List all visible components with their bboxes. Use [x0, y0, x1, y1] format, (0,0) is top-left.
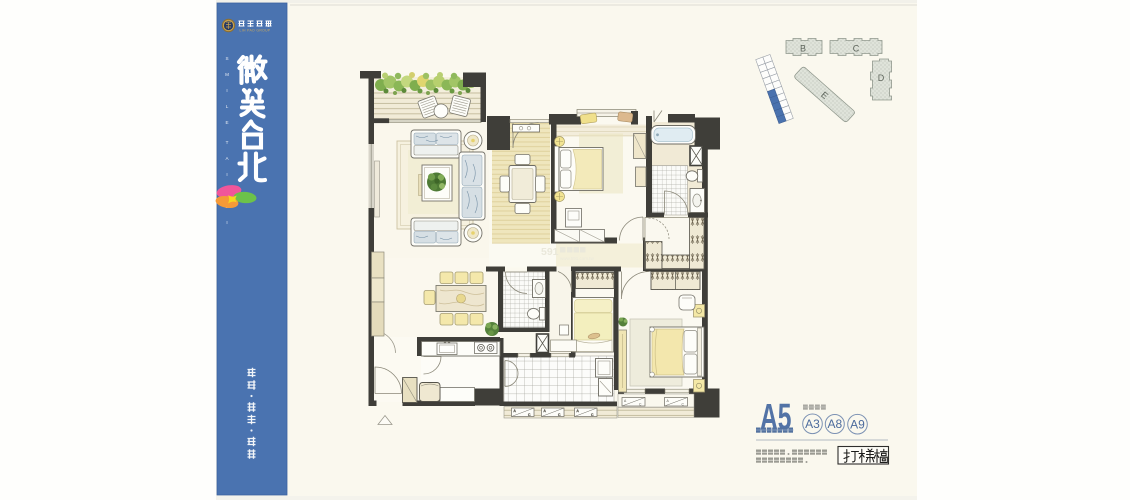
svg-text:B: B — [800, 44, 806, 54]
svg-text:M: M — [225, 72, 229, 77]
svg-text:D: D — [878, 73, 885, 83]
svg-text:C: C — [853, 44, 860, 54]
svg-text:T: T — [226, 140, 229, 145]
svg-text:E: E — [225, 120, 228, 125]
svg-text:A3: A3 — [805, 417, 820, 431]
svg-text:LIH PAO GROUP: LIH PAO GROUP — [239, 29, 270, 33]
svg-text:I: I — [226, 172, 227, 177]
svg-text:I: I — [226, 220, 227, 225]
svg-text:L: L — [226, 104, 229, 109]
svg-text:S: S — [225, 56, 228, 61]
svg-text:www.591.com.tw: www.591.com.tw — [560, 256, 595, 261]
svg-text:I: I — [226, 88, 227, 93]
svg-text:591: 591 — [541, 246, 559, 258]
svg-text:A9: A9 — [850, 417, 865, 431]
svg-text:A8: A8 — [827, 417, 842, 431]
